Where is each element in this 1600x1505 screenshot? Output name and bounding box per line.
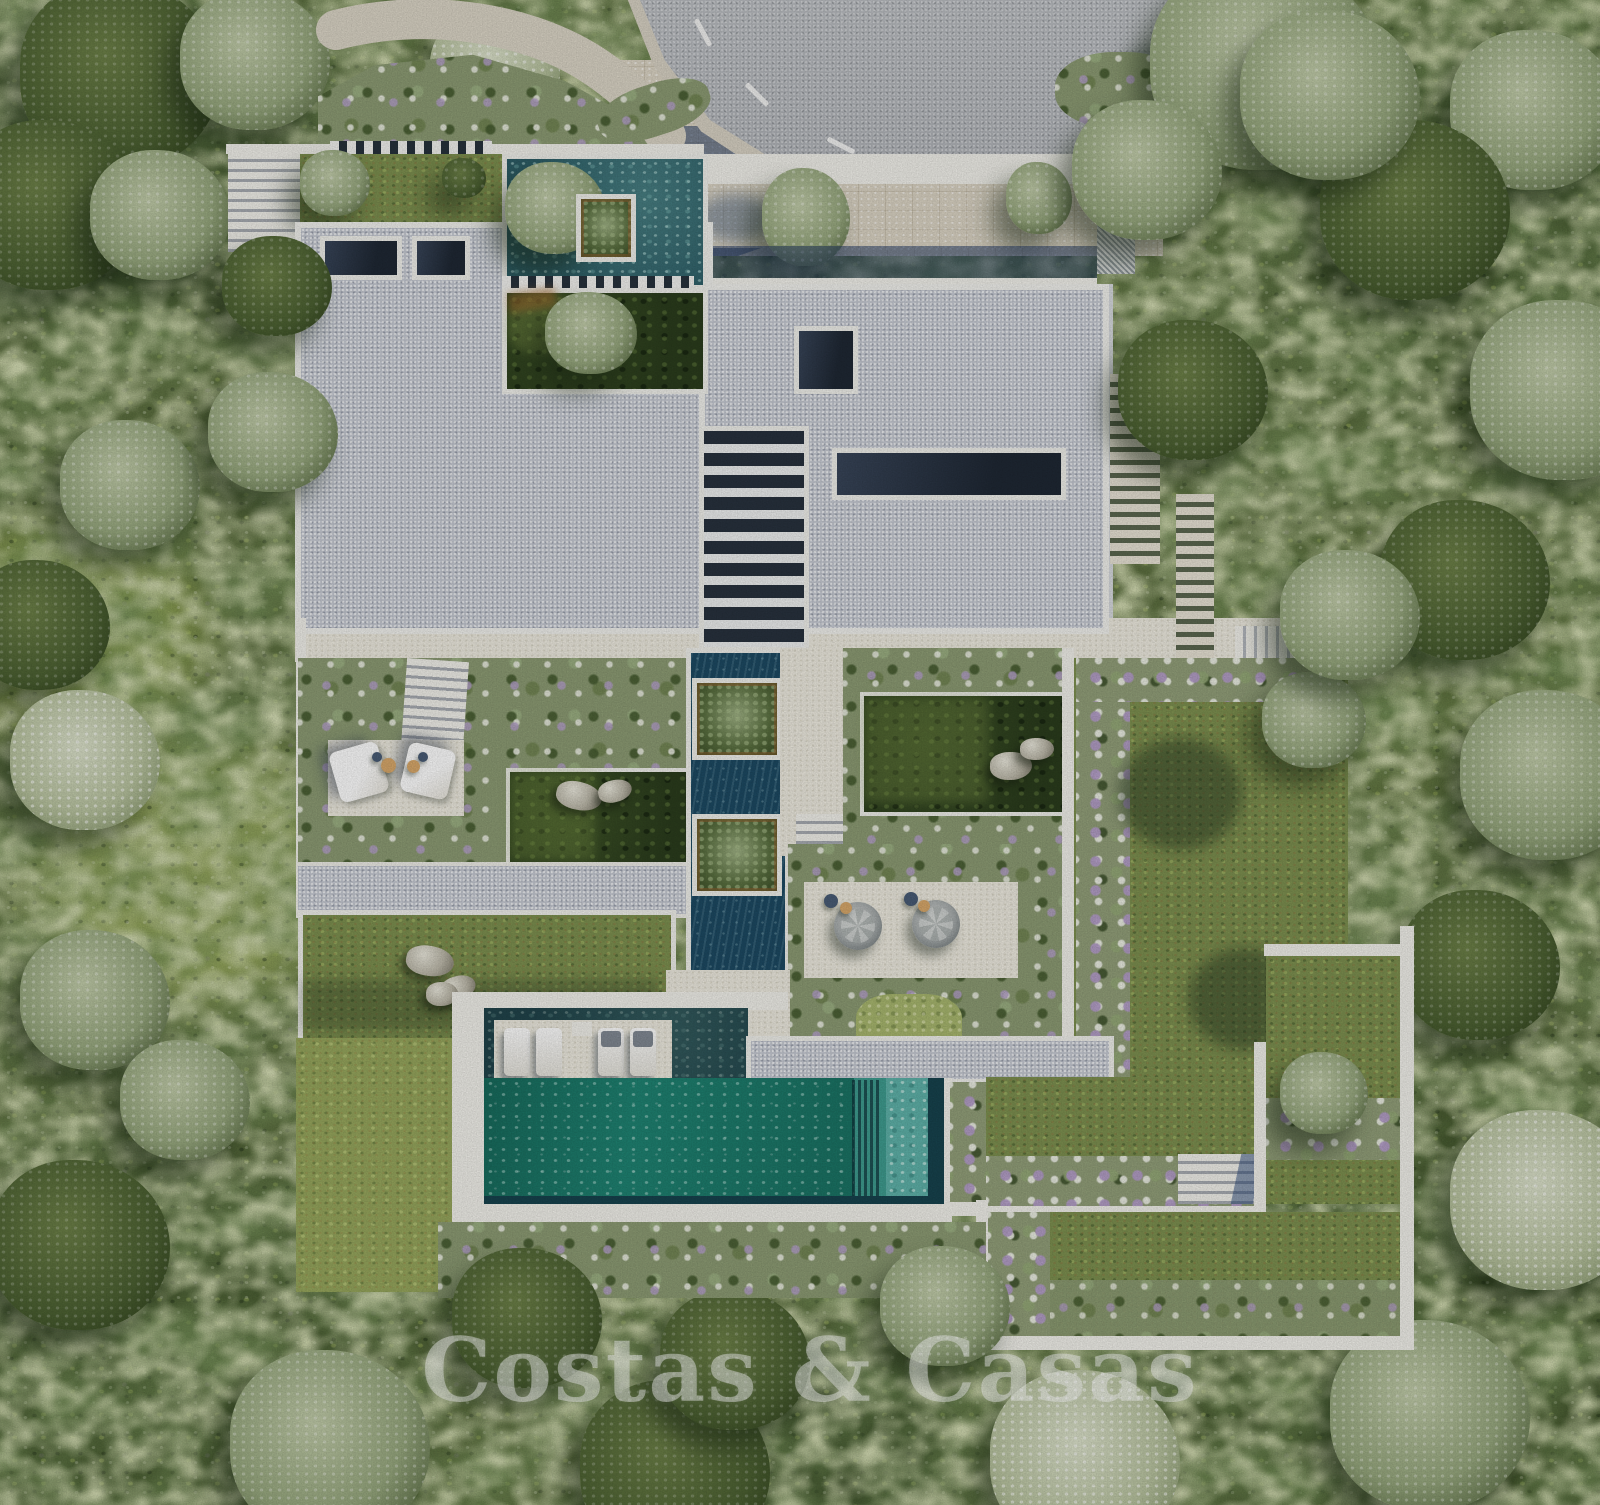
grain-overlay xyxy=(0,0,1600,1505)
aerial-villa-render: Costas & Casas xyxy=(0,0,1600,1505)
